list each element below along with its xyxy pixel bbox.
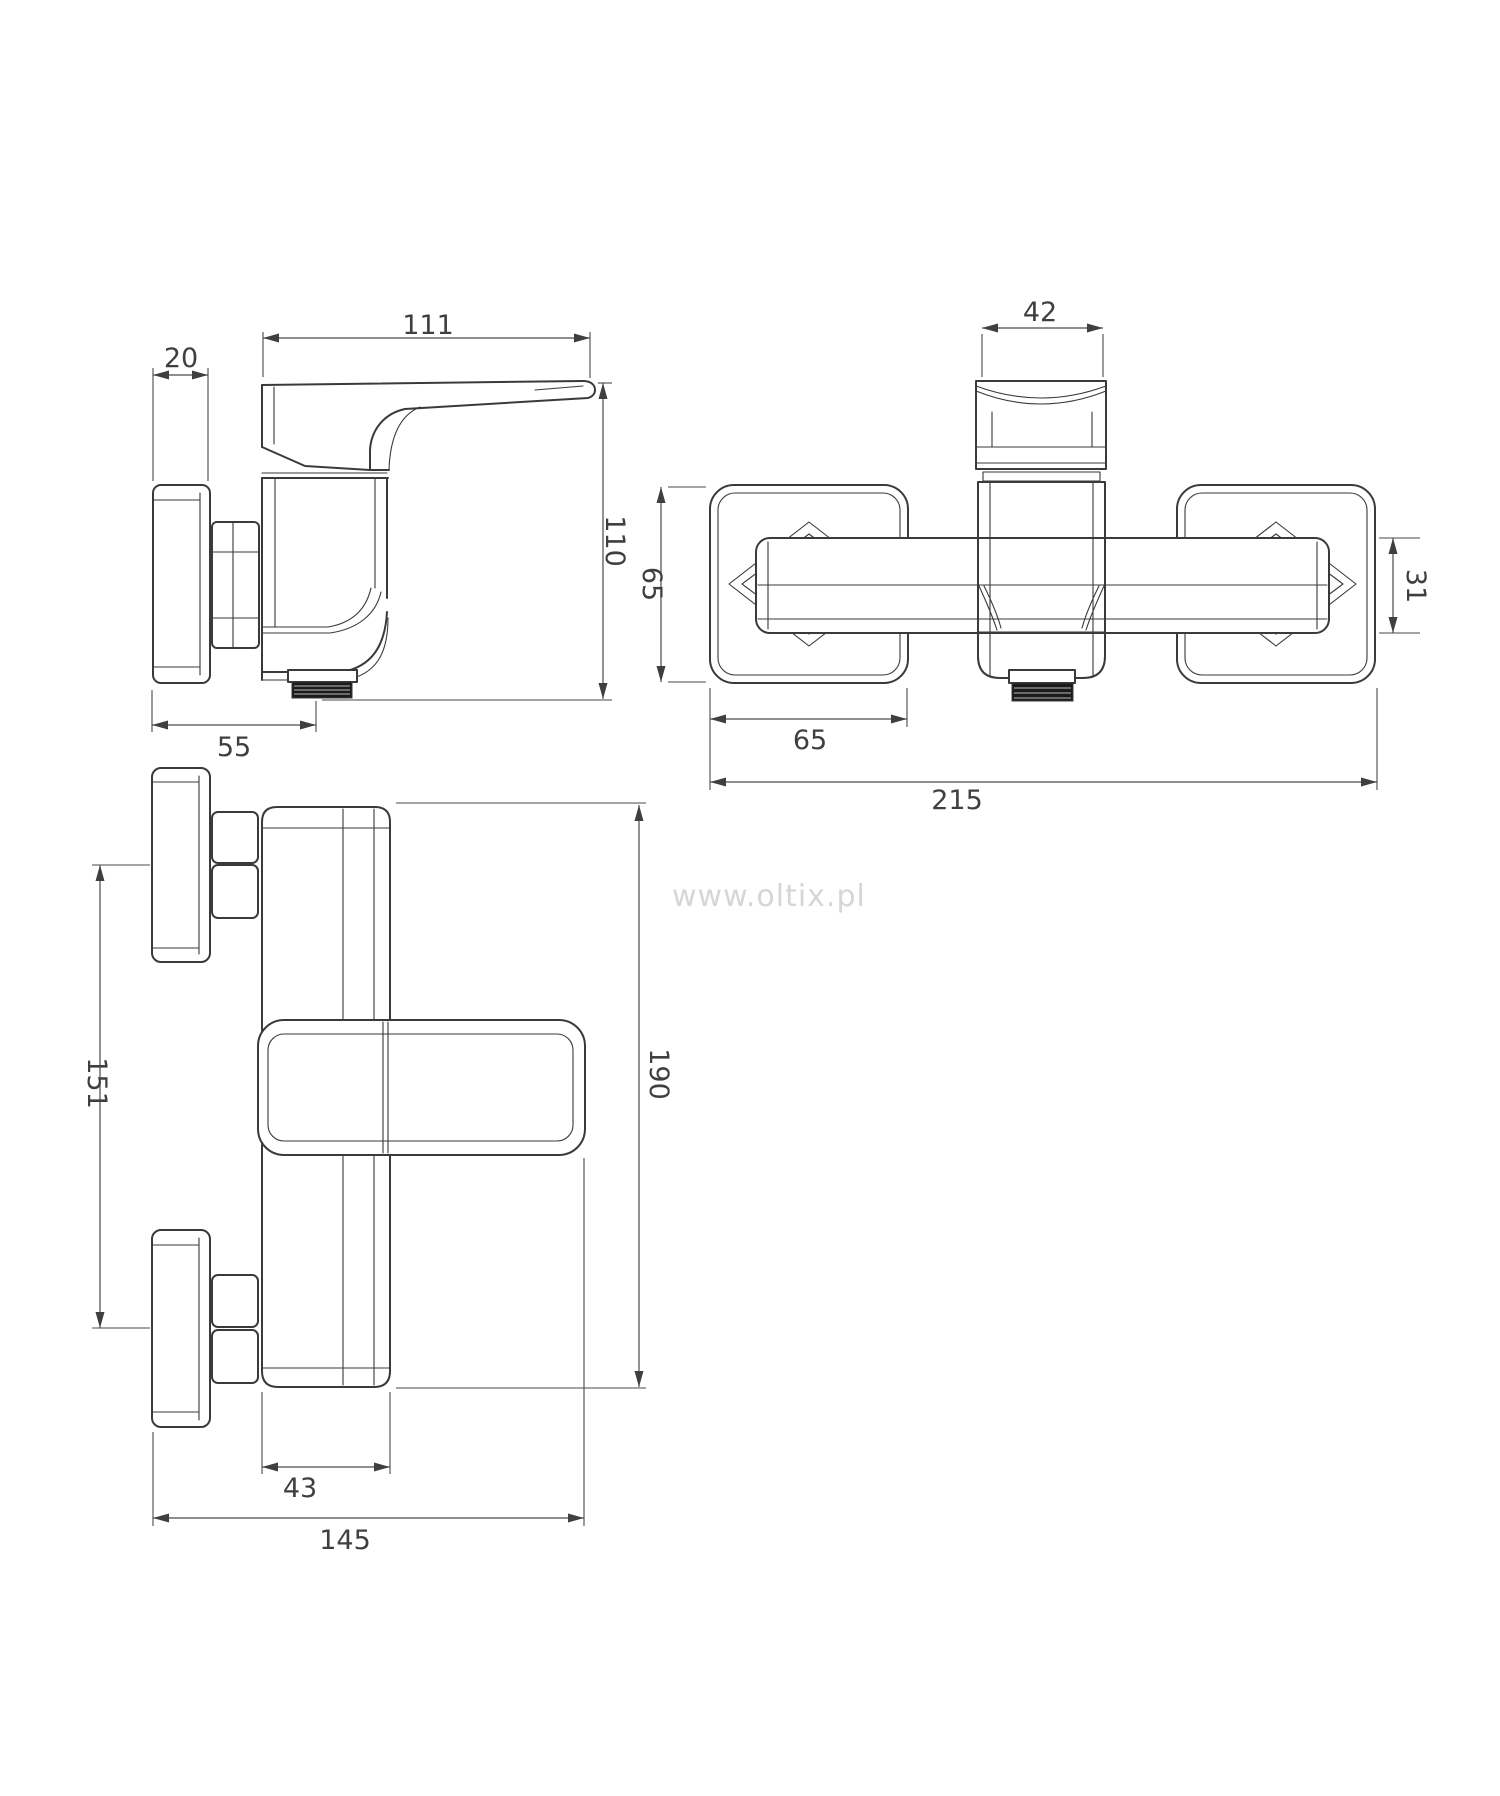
dim-label-42: 42 bbox=[1023, 297, 1057, 328]
dim-side-lever-length: 111 bbox=[263, 310, 590, 378]
top-view-lower-wall-plate bbox=[152, 1230, 210, 1427]
top-view-upper-hex-nut bbox=[212, 812, 258, 918]
dim-label-145: 145 bbox=[319, 1525, 371, 1556]
dim-side-height: 110 bbox=[322, 383, 630, 700]
dim-label-55: 55 bbox=[217, 732, 251, 763]
top-view-lower-hex-nut bbox=[212, 1275, 258, 1383]
dim-front-escutcheon-width: 65 bbox=[710, 688, 907, 790]
dim-label-110: 110 bbox=[599, 515, 630, 567]
dim-label-65-width: 65 bbox=[793, 725, 827, 756]
dim-front-tube-height: 31 bbox=[1379, 538, 1431, 633]
dim-front-escutcheon-height: 65 bbox=[636, 487, 706, 682]
dim-front-handle-width: 42 bbox=[982, 297, 1103, 377]
front-view-outlet bbox=[1009, 670, 1075, 701]
side-view-body bbox=[262, 473, 388, 680]
dim-label-65-height: 65 bbox=[636, 567, 667, 601]
dim-top-overall-depth: 145 bbox=[153, 1158, 584, 1556]
dim-label-215: 215 bbox=[931, 785, 983, 816]
watermark-text: www.oltix.pl bbox=[672, 879, 866, 914]
dim-label-111: 111 bbox=[402, 310, 454, 341]
side-view-outlet bbox=[288, 670, 357, 698]
dim-label-151: 151 bbox=[81, 1057, 112, 1109]
top-view-upper-wall-plate bbox=[152, 768, 210, 962]
front-view: 42 65 65 31 215 bbox=[636, 297, 1431, 816]
dim-label-31: 31 bbox=[1400, 569, 1431, 603]
dim-label-190: 190 bbox=[643, 1048, 674, 1100]
dim-top-mount-spacing: 151 bbox=[81, 865, 150, 1328]
front-view-handle bbox=[976, 381, 1106, 481]
dim-label-20: 20 bbox=[164, 343, 198, 374]
side-view: 111 20 110 55 bbox=[152, 310, 630, 763]
faucet-dimension-drawing: 111 20 110 55 bbox=[0, 0, 1500, 1796]
side-view-wall-plate bbox=[153, 485, 210, 683]
dim-top-body-width: 43 bbox=[262, 1392, 390, 1504]
top-view: 151 190 43 145 bbox=[81, 768, 674, 1556]
side-view-lever bbox=[262, 381, 595, 470]
dim-label-43: 43 bbox=[283, 1473, 317, 1504]
front-view-body-tube bbox=[756, 538, 1329, 633]
dim-side-wall-to-outlet: 55 bbox=[152, 690, 316, 763]
dim-side-plate-depth: 20 bbox=[153, 343, 208, 481]
technical-drawing-page: 111 20 110 55 bbox=[0, 0, 1500, 1796]
side-view-hex-nut bbox=[212, 522, 259, 648]
top-view-lever-paddle bbox=[258, 1020, 585, 1155]
